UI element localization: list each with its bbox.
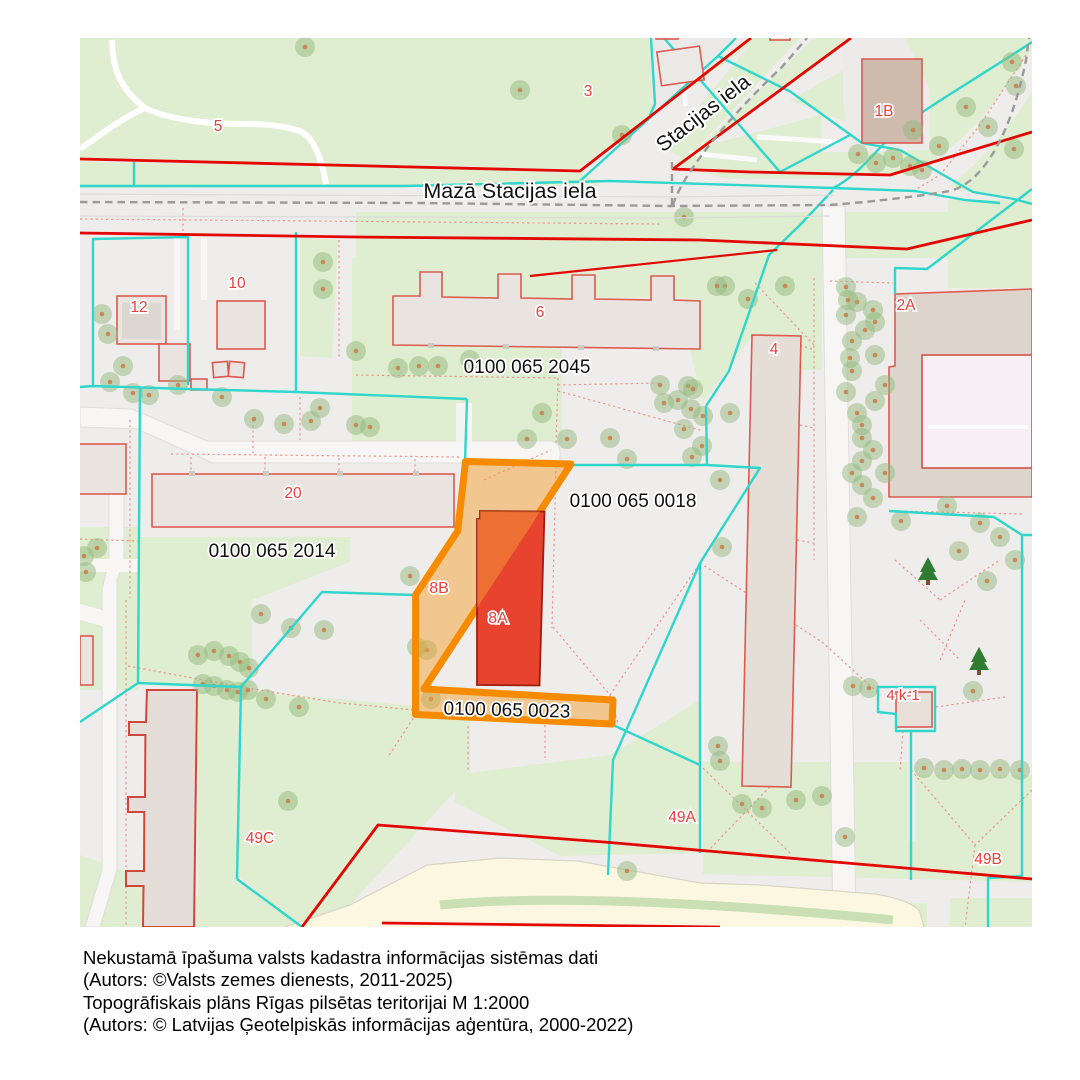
svg-text:0100 065 0023: 0100 065 0023 bbox=[443, 698, 570, 722]
svg-text:6: 6 bbox=[536, 304, 545, 321]
svg-text:0100 065 0018: 0100 065 0018 bbox=[570, 491, 697, 512]
svg-text:3: 3 bbox=[584, 83, 593, 100]
svg-text:Mazā Stacijas iela: Mazā Stacijas iela bbox=[423, 179, 596, 203]
svg-text:(Autors: © Latvijas Ģeotelpisk: (Autors: © Latvijas Ģeotelpiskās informā… bbox=[83, 1014, 633, 1035]
svg-text:1B: 1B bbox=[875, 103, 894, 120]
svg-text:49C: 49C bbox=[246, 830, 274, 847]
svg-text:20: 20 bbox=[284, 485, 302, 502]
svg-text:5: 5 bbox=[214, 118, 223, 135]
svg-text:0100 065 2014: 0100 065 2014 bbox=[209, 541, 336, 562]
svg-text:49A: 49A bbox=[668, 809, 696, 826]
svg-text:Topogrāfiskais plāns Rīgas pil: Topogrāfiskais plāns Rīgas pilsētas teri… bbox=[83, 992, 529, 1013]
svg-text:8B: 8B bbox=[429, 580, 449, 597]
svg-text:(Autors: ©Valsts zemes dienest: (Autors: ©Valsts zemes dienests, 2011-20… bbox=[83, 969, 453, 990]
svg-text:Nekustamā īpašuma valsts kadas: Nekustamā īpašuma valsts kadastra inform… bbox=[83, 947, 598, 968]
svg-text:8A: 8A bbox=[488, 610, 508, 627]
svg-text:49B: 49B bbox=[974, 851, 1002, 868]
svg-text:0100 065 2045: 0100 065 2045 bbox=[464, 357, 591, 378]
svg-text:4: 4 bbox=[770, 341, 779, 358]
svg-text:2A: 2A bbox=[897, 297, 917, 314]
svg-text:12: 12 bbox=[130, 299, 147, 316]
svg-text:4 k-1: 4 k-1 bbox=[886, 687, 919, 704]
svg-text:10: 10 bbox=[228, 275, 246, 292]
